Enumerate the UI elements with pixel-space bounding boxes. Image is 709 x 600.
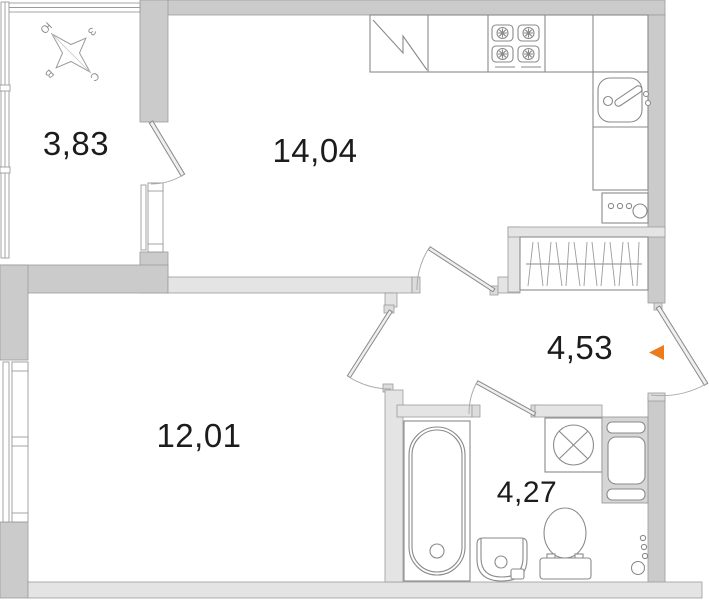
bedroom-window	[3, 362, 28, 522]
kitchen-area-label: 14,04	[272, 132, 357, 169]
wall-top	[142, 0, 665, 15]
glazing-mullion	[0, 85, 10, 91]
door-leaf	[428, 247, 494, 292]
floor-plan: С Ю В З 3,83 14,04 12,01 4,53 4,27	[0, 0, 709, 600]
wall-bath-top-left	[397, 405, 472, 417]
compass-rose-icon: С Ю В З	[17, 0, 122, 104]
door-leaf	[656, 306, 707, 385]
wall-bottom	[28, 582, 702, 598]
bedroom-area-label: 12,01	[156, 417, 241, 454]
balcony-door	[149, 121, 184, 184]
wall-bath-top-right	[535, 405, 602, 417]
balcony-area-label: 3,83	[43, 125, 109, 162]
wardrobe-icon	[520, 237, 648, 290]
wall-balcony-divider-top	[140, 0, 168, 122]
washbasin-icon	[477, 538, 527, 581]
washing-machine-icon	[545, 418, 602, 472]
window-transom	[12, 437, 28, 446]
compass-east-label: В	[42, 67, 56, 81]
window-cap	[12, 362, 28, 371]
wall-right-lower	[648, 397, 665, 590]
wall-hall-top	[508, 227, 665, 237]
kitchen-balcony-window	[141, 183, 163, 252]
window-inner-frame	[148, 183, 163, 252]
wall-right-upper	[648, 15, 665, 303]
wall-kitchen-bottom	[168, 277, 412, 293]
vent-shaft-icon	[602, 417, 648, 503]
glazing-mullion	[0, 167, 10, 173]
toilet-icon	[540, 508, 591, 579]
door-leaf	[347, 310, 392, 378]
door-leaf	[149, 121, 184, 176]
bathroom-area-label: 4,27	[497, 476, 557, 509]
door-jamb	[648, 393, 665, 401]
wall-room-bath	[385, 390, 403, 582]
counter-top-run	[370, 15, 648, 72]
riser-pipes-icon	[632, 535, 648, 574]
wall-left-upper	[0, 265, 28, 360]
entrance-arrow-icon	[649, 345, 664, 360]
compass-west-label: З	[85, 24, 98, 37]
bathtub-icon	[404, 421, 470, 581]
window-cap	[148, 244, 163, 252]
door-jamb	[412, 277, 420, 293]
window-cap	[12, 513, 28, 522]
window-outer-frame	[141, 185, 146, 250]
wall-left-lower	[0, 522, 28, 598]
hallway-area-label: 4,53	[547, 329, 613, 366]
kitchen-door	[417, 247, 495, 292]
window-outer-frame	[3, 362, 9, 522]
door-leaf	[476, 381, 535, 416]
door-jamb	[472, 405, 480, 417]
bedroom-door	[347, 310, 392, 389]
floor-plan-drawing: С Ю В З 3,83 14,04 12,01 4,53 4,27	[0, 0, 709, 600]
kitchen-riser-pipes-icon	[602, 193, 648, 223]
